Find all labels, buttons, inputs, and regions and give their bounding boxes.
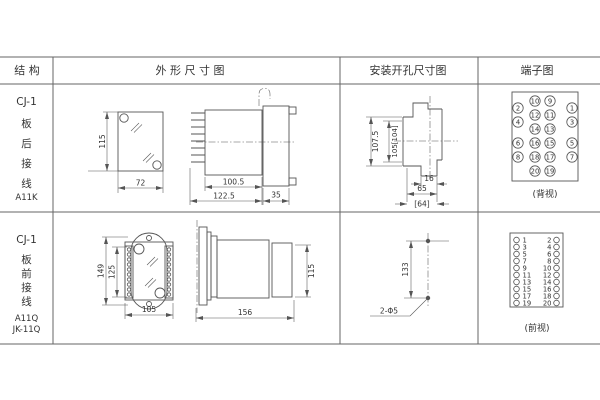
dim-hole-spacing: 133 [401, 262, 410, 277]
header-terminal: 端子图 [521, 64, 554, 77]
terminal-pin [167, 248, 170, 251]
terminal-pin [127, 278, 130, 281]
row1-front-view: 115 72 [88, 112, 163, 193]
dim-side2-total: 156 [238, 308, 253, 317]
terminal-pin [127, 273, 130, 276]
row2-mounting-type: 板前接线 [0, 253, 53, 309]
dim-side-body: 100.5 [223, 178, 245, 187]
terminal-number: 18 [531, 153, 540, 161]
leader-line [370, 298, 428, 316]
header-outline: 外 形 尺 寸 图 [156, 63, 225, 77]
row1-model: CJ-1 [0, 96, 53, 108]
dim-front2-height-inner: 125 [108, 265, 117, 280]
dim-side-total: 122.5 [213, 192, 235, 201]
terminal-pin [167, 293, 170, 296]
terminal-pin [127, 258, 130, 261]
terminal-number: 20 [531, 167, 540, 175]
terminal-caption-front: (前视) [524, 322, 549, 334]
row1-mounting-type-text: 板后接线 [20, 114, 33, 194]
terminal-number: 6 [516, 139, 520, 147]
terminal-number: 3 [570, 118, 574, 126]
row2-mounting-type-text: 板前接线 [20, 253, 33, 309]
terminal-pin [554, 279, 560, 285]
terminal-pin [514, 293, 520, 299]
terminal-number: 19 [546, 167, 555, 175]
terminal-number: 7 [570, 153, 574, 161]
terminal-caption-back: (背视) [532, 188, 557, 200]
terminal-pin [514, 237, 520, 243]
terminal-pin [167, 278, 170, 281]
terminal-pin [127, 263, 130, 266]
terminal-pin [127, 253, 130, 256]
row1-mounting-diagram: 107.5 105[104] 16 65 [64] [366, 96, 458, 209]
terminal-number: 10 [531, 97, 540, 105]
terminal-pin [554, 265, 560, 271]
terminal-pin [554, 237, 560, 243]
terminal-number: 17 [546, 153, 555, 161]
terminal-pin [167, 288, 170, 291]
terminal-pin [514, 272, 520, 278]
row2-variant2: JK-11Q [0, 325, 53, 335]
terminal-pin [554, 244, 560, 250]
hatch-marks [131, 123, 154, 163]
dim-front-width: 72 [136, 179, 146, 188]
hatch-marks [145, 257, 158, 288]
dim-side-rear: 35 [271, 191, 281, 200]
row2-model: CJ-1 [0, 234, 53, 246]
row1-mounting-type: 板后接线 [0, 114, 53, 194]
terminal-pin [167, 263, 170, 266]
drawing-sheet: 结 构 外 形 尺 寸 图 安装开孔尺寸图 端子图 115 72 100.5 1… [0, 0, 600, 400]
terminal-number: 16 [531, 139, 540, 147]
row2-terminal-diagram: 1357911131517192468101214161820 (前视) [510, 233, 563, 334]
dim-front-height: 115 [98, 134, 107, 149]
terminal-number: 2 [516, 104, 520, 112]
terminal-pin [127, 283, 130, 286]
terminal-number: 9 [548, 97, 552, 105]
terminal-pin [554, 272, 560, 278]
terminal-pin [514, 251, 520, 257]
terminal-number: 14 [531, 125, 540, 133]
terminal-number: 13 [546, 125, 555, 133]
dim-front2-width: 105 [142, 305, 157, 314]
mounting-hole [426, 239, 430, 243]
terminal-number: 15 [546, 139, 555, 147]
terminal-number: 5 [570, 139, 574, 147]
table-header: 结 构 外 形 尺 寸 图 安装开孔尺寸图 端子图 [14, 63, 553, 77]
terminal-pin [514, 300, 520, 306]
terminal-pin [167, 283, 170, 286]
terminal-pin [554, 258, 560, 264]
terminal-pin [514, 279, 520, 285]
terminal-pin [167, 253, 170, 256]
dim-hole-size: 2-Φ5 [380, 307, 398, 316]
header-structure: 结 构 [14, 63, 40, 77]
terminal-pin [167, 258, 170, 261]
technical-drawing: 结 构 外 形 尺 寸 图 安装开孔尺寸图 端子图 115 72 100.5 1… [0, 0, 600, 400]
dim-cutout-width-alt: [64] [414, 200, 429, 209]
hook-centerline [259, 89, 270, 107]
dim-front2-height-outer: 149 [97, 264, 106, 279]
terminal-pin [554, 251, 560, 257]
dim-cutout-height-outer: 107.5 [371, 131, 380, 153]
row1-side-view: 100.5 122.5 35 [190, 89, 296, 206]
row1-variant: A11K [0, 193, 53, 203]
row2-variant: A11Q [0, 314, 53, 324]
terminal-pin [514, 265, 520, 271]
terminal-pin [127, 288, 130, 291]
flange [199, 227, 207, 305]
terminal-pins-side [191, 113, 205, 162]
row2-strip-pins [127, 248, 170, 296]
terminal-pin [554, 286, 560, 292]
terminal-pin [514, 244, 520, 250]
terminal-pin [514, 286, 520, 292]
terminal-number: 20 [543, 299, 552, 307]
terminal-pin [127, 268, 130, 271]
terminal-pin [167, 268, 170, 271]
terminal-pin [514, 258, 520, 264]
terminal-number: 8 [516, 153, 520, 161]
terminal-pin [167, 273, 170, 276]
dim-cutout-slot: 16 [424, 174, 434, 183]
terminal-pin [554, 300, 560, 306]
terminal-pin [127, 293, 130, 296]
row2-mounting-diagram: 133 2-Φ5 [370, 233, 449, 316]
terminal-pin [127, 248, 130, 251]
header-mounting: 安装开孔尺寸图 [370, 63, 447, 77]
terminal-front-pins: 1357911131517192468101214161820 [514, 236, 560, 307]
terminal-number: 4 [516, 118, 520, 126]
dim-side2-height: 115 [307, 264, 316, 279]
terminal-back-pins: 1012141618209111315171924681357 [513, 96, 577, 176]
dim-cutout-height-inner: 105[104] [391, 125, 399, 157]
row2-side-view: 115 156 [196, 220, 316, 322]
terminal-number: 12 [531, 111, 540, 119]
dim-cutout-width: 65 [417, 184, 427, 193]
terminal-number: 19 [523, 299, 532, 307]
terminal-number: 11 [546, 111, 555, 119]
row1-terminal-diagram: 1012141618209111315171924681357 (背视) [512, 92, 578, 200]
terminal-number: 1 [570, 104, 574, 112]
terminal-pin [554, 293, 560, 299]
row2-front-view: 149 125 105 [97, 233, 174, 319]
